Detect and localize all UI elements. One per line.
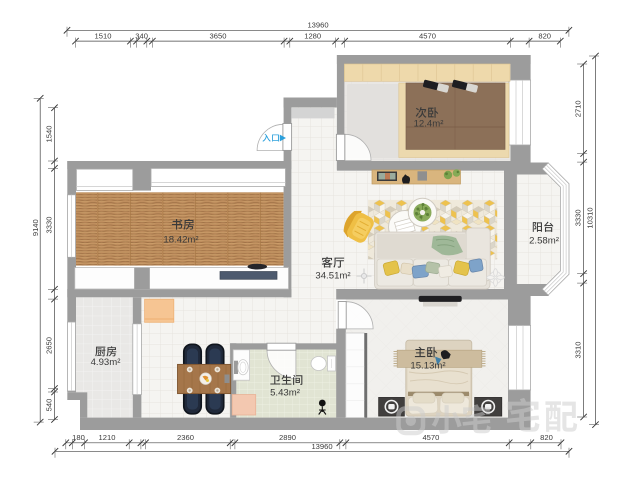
svg-text:3310: 3310 [573, 342, 582, 359]
svg-text:2360: 2360 [177, 433, 194, 442]
svg-text:2890: 2890 [279, 433, 296, 442]
svg-text:3330: 3330 [573, 209, 582, 226]
svg-text:15.13m²: 15.13m² [410, 361, 446, 372]
svg-text:540: 540 [45, 399, 54, 412]
svg-text:34.51m²: 34.51m² [315, 271, 351, 282]
svg-text:820: 820 [538, 31, 551, 40]
svg-text:3330: 3330 [45, 217, 54, 234]
svg-text:5.43m²: 5.43m² [270, 388, 301, 399]
svg-text:1210: 1210 [99, 433, 116, 442]
svg-text:1510: 1510 [95, 31, 112, 40]
svg-text:13960: 13960 [307, 21, 328, 30]
svg-text:10310: 10310 [585, 207, 594, 228]
svg-text:820: 820 [540, 433, 553, 442]
svg-text:1540: 1540 [45, 126, 54, 143]
svg-text:2650: 2650 [45, 337, 54, 354]
svg-text:9140: 9140 [31, 219, 40, 236]
svg-text:2710: 2710 [573, 100, 582, 117]
svg-text:340: 340 [135, 31, 148, 40]
svg-text:18.42m²: 18.42m² [163, 235, 199, 246]
svg-text:3650: 3650 [210, 31, 227, 40]
svg-text:4.93m²: 4.93m² [91, 357, 122, 368]
svg-text:13960: 13960 [311, 442, 332, 451]
svg-text:4570: 4570 [419, 31, 436, 40]
svg-text:2.58m²: 2.58m² [529, 236, 560, 247]
svg-text:4570: 4570 [422, 433, 439, 442]
svg-text:12.4m²: 12.4m² [414, 119, 445, 130]
svg-text:1280: 1280 [304, 31, 321, 40]
svg-text:180: 180 [72, 433, 85, 442]
